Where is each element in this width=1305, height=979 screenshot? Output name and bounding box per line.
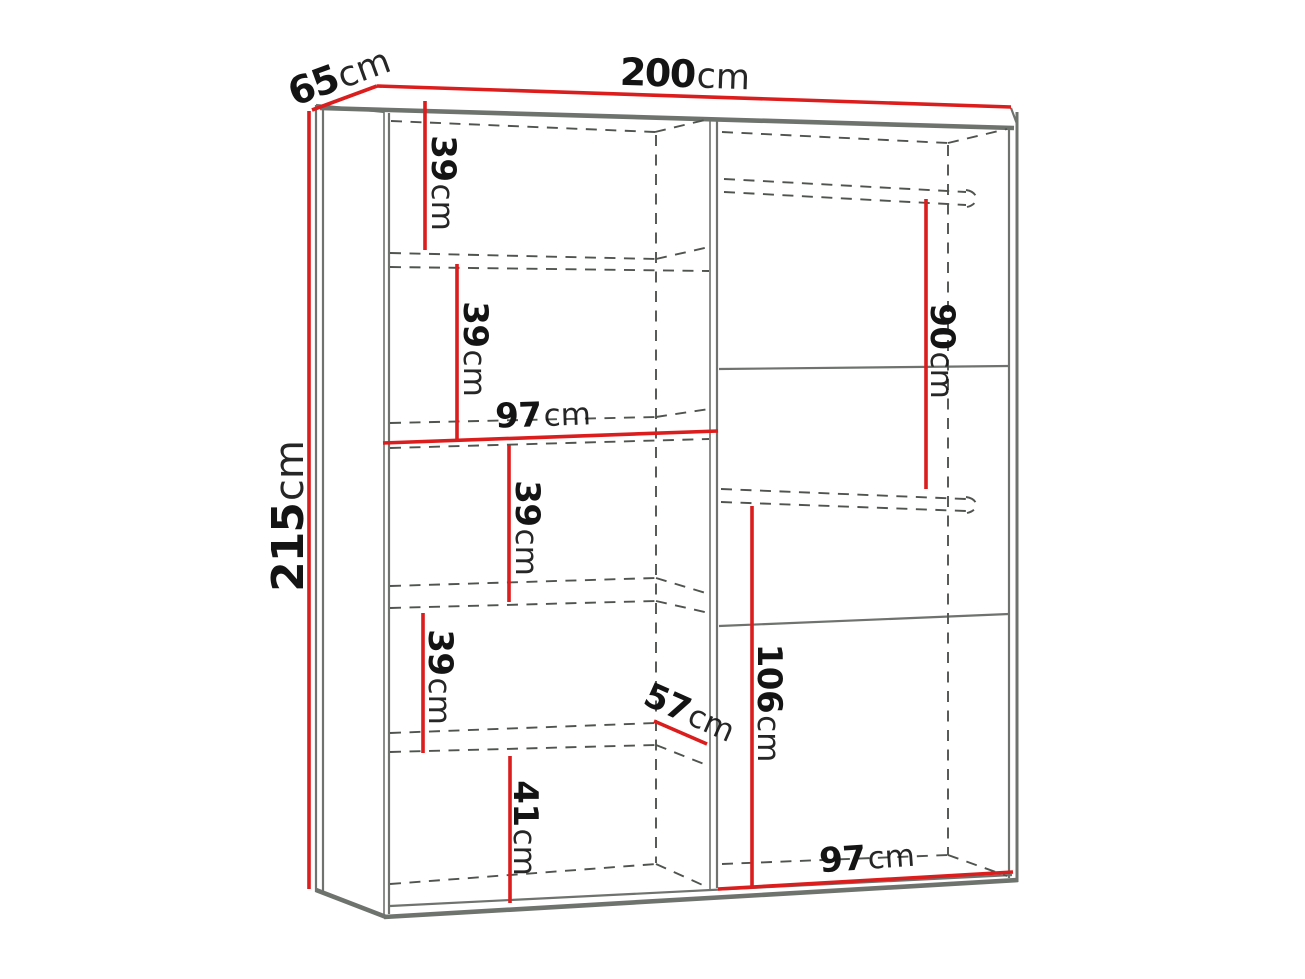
label-right-width-97cm: 97cm [818,835,916,882]
floor-front-edge [390,875,1012,906]
shelf4-kink-bottom [656,745,709,766]
shelf1-kink [656,247,709,259]
rail-mid-edge-lower [721,502,966,511]
rail-mid-end-cap [966,497,976,513]
label-shelf4-39cm: 39cm [420,629,460,725]
rail-top-edge-lower [724,192,966,205]
shelf1-edge-bottom [390,267,709,271]
label-shelf3-39cm: 39cm [507,480,547,576]
diagram-canvas: 200cm 65cm 215cm 39cm 39cm 97cm 39cm 39c… [0,0,1305,979]
shelf3-kink-top [656,578,709,594]
hanging-rail-middle [721,489,976,513]
bottom-left-side-edge [316,890,386,917]
rail-top-end-cap [966,190,976,207]
rail-mid-edge-upper [721,489,966,499]
shelf3-kink-bottom [656,601,709,613]
label-shelf1-39cm: 39cm [423,135,463,231]
label-bottom-shelf-41cm: 41cm [505,780,545,876]
hanging-rail-top [724,179,976,207]
rail-top-edge-upper [724,179,966,192]
left-top-back-edge [391,121,655,132]
right-top-back-kink [948,129,1007,143]
center-divider [710,121,717,889]
left-top-back-kink [655,119,709,132]
label-depth-57cm: 57cm [638,675,742,750]
label-width-200cm: 200cm [619,50,751,99]
shelf4-edge-bottom [390,745,656,752]
bottom-front-edge [384,880,1018,917]
shelf2-kink [656,409,709,417]
wardrobe-dimension-diagram: 200cm 65cm 215cm 39cm 39cm 97cm 39cm 39c… [0,0,1305,979]
right-section-shelves [719,366,1009,626]
right-shelf-upper [719,366,1009,369]
hidden-back-edges [390,119,1007,887]
dimension-lines [309,86,1013,903]
shelf3-edge-top [390,578,656,586]
dimension-labels: 200cm 65cm 215cm 39cm 39cm 97cm 39cm 39c… [263,37,962,881]
right-top-back-edge [722,132,948,143]
shelf3-edge-bottom [390,601,656,608]
label-rail-90cm: 90cm [922,303,962,399]
label-depth-65cm: 65cm [282,37,396,114]
cabinet-frame [316,105,1018,917]
right-shelf-lower [719,614,1009,626]
shelf1-edge-top [390,253,656,259]
label-shelf2-39cm: 39cm [455,301,495,397]
label-hang-106cm: 106cm [749,644,789,763]
label-left-width-97cm: 97cm [495,393,592,436]
label-height-215cm: 215cm [263,440,314,592]
left-bottom-back-kink [656,864,707,887]
